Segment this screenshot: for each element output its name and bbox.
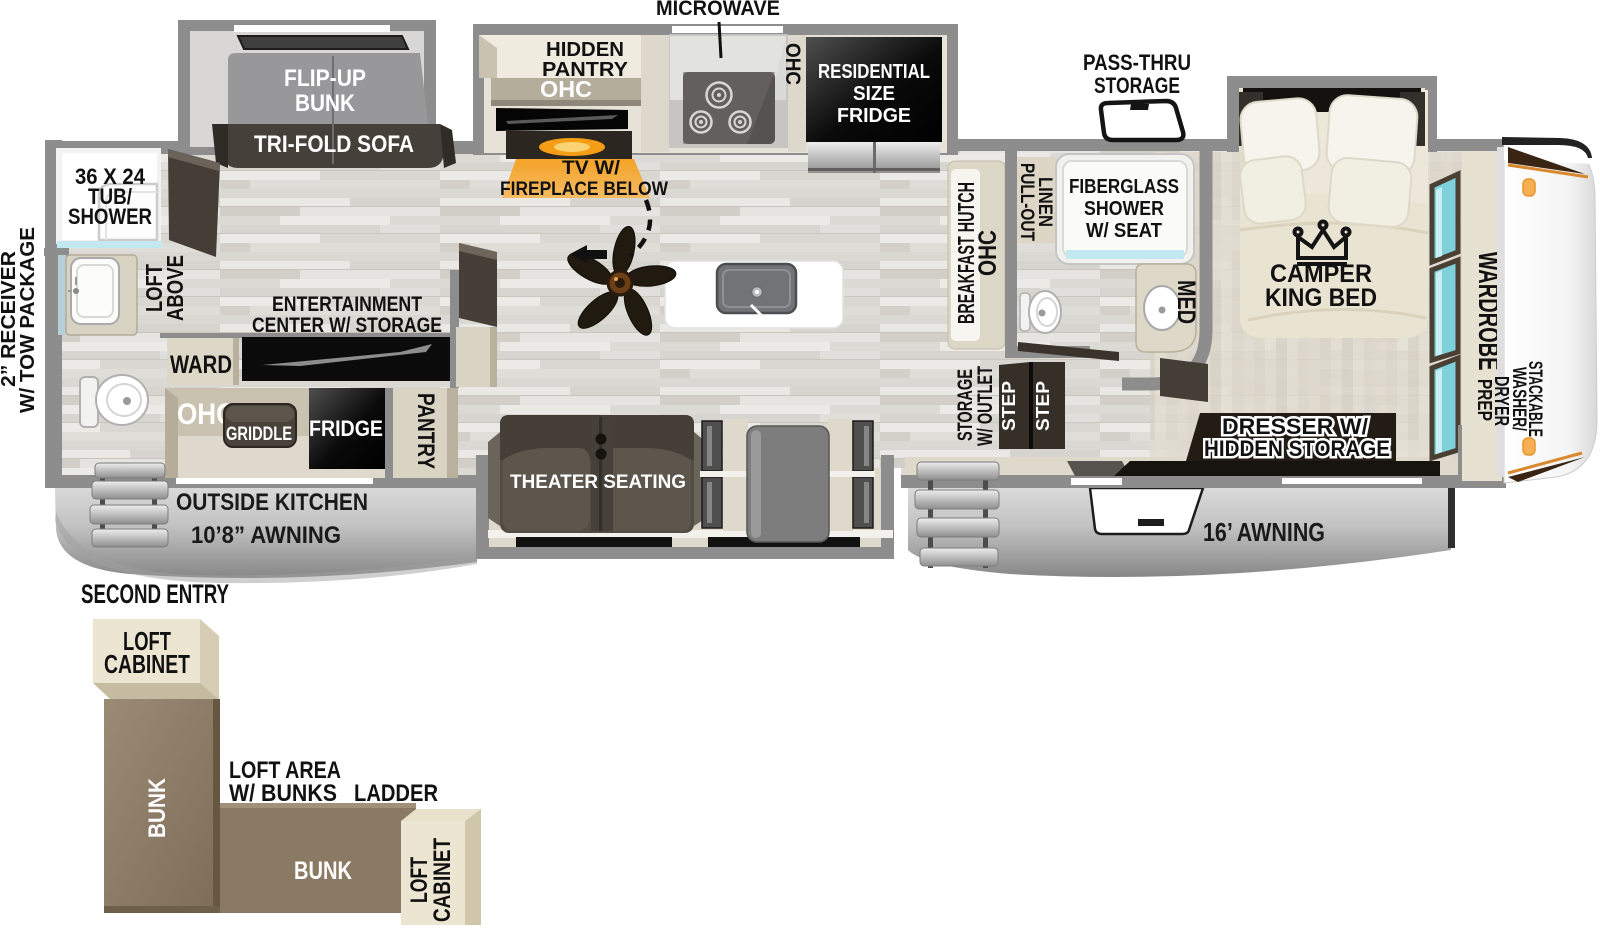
- svg-text:STEP: STEP: [1033, 381, 1053, 431]
- svg-text:STEP: STEP: [999, 381, 1019, 431]
- svg-text:FRIDGE: FRIDGE: [309, 416, 383, 441]
- svg-text:HIDDEN: HIDDEN: [546, 39, 624, 61]
- svg-text:ENTERTAINMENT: ENTERTAINMENT: [272, 293, 422, 316]
- svg-text:W/ TOW PACKAGE: W/ TOW PACKAGE: [17, 227, 39, 413]
- svg-text:WASHER/: WASHER/: [1508, 367, 1529, 432]
- svg-text:PASS-THRU: PASS-THRU: [1083, 50, 1191, 75]
- svg-text:W/ BUNKS: W/ BUNKS: [229, 780, 337, 807]
- svg-text:HIDDEN STORAGE: HIDDEN STORAGE: [1204, 436, 1390, 461]
- svg-text:OHC: OHC: [781, 43, 804, 85]
- svg-text:FRIDGE: FRIDGE: [837, 105, 911, 127]
- svg-text:GRIDDLE: GRIDDLE: [226, 424, 292, 445]
- svg-text:TRI-FOLD SOFA: TRI-FOLD SOFA: [254, 131, 414, 158]
- svg-text:TV W/: TV W/: [562, 158, 621, 179]
- svg-text:MED: MED: [1172, 280, 1200, 324]
- svg-text:PREP: PREP: [1473, 379, 1495, 421]
- svg-text:SECOND ENTRY: SECOND ENTRY: [81, 579, 229, 609]
- svg-text:MICROWAVE: MICROWAVE: [656, 0, 780, 20]
- svg-text:PANTRY: PANTRY: [412, 393, 439, 469]
- svg-text:OHC: OHC: [540, 76, 592, 102]
- svg-text:SIZE: SIZE: [853, 83, 895, 105]
- svg-text:BUNK: BUNK: [144, 777, 171, 838]
- svg-text:OUTSIDE KITCHEN: OUTSIDE KITCHEN: [176, 489, 368, 516]
- svg-text:KING BED: KING BED: [1265, 284, 1377, 312]
- svg-text:FIREPLACE BELOW: FIREPLACE BELOW: [500, 179, 668, 200]
- svg-text:LADDER: LADDER: [354, 780, 438, 807]
- svg-text:10’8” AWNING: 10’8” AWNING: [191, 522, 341, 549]
- svg-text:16’ AWNING: 16’ AWNING: [1203, 517, 1325, 547]
- svg-text:ABOVE: ABOVE: [162, 255, 188, 321]
- svg-text:CABINET: CABINET: [104, 649, 190, 679]
- svg-text:BUNK: BUNK: [295, 90, 356, 117]
- svg-text:W/ OUTLET: W/ OUTLET: [974, 366, 997, 446]
- svg-text:SHOWER: SHOWER: [68, 204, 152, 229]
- svg-text:LINEN: LINEN: [1034, 177, 1055, 227]
- svg-text:SHOWER: SHOWER: [1084, 198, 1164, 220]
- svg-text:PULL-OUT: PULL-OUT: [1016, 163, 1037, 241]
- svg-text:OHC: OHC: [974, 230, 1002, 276]
- svg-text:FLIP-UP: FLIP-UP: [284, 65, 366, 92]
- svg-text:W/ SEAT: W/ SEAT: [1086, 220, 1162, 242]
- svg-text:STORAGE: STORAGE: [1094, 73, 1180, 98]
- svg-text:BUNK: BUNK: [294, 857, 352, 885]
- svg-text:FIBERGLASS: FIBERGLASS: [1069, 176, 1179, 198]
- svg-text:WARD: WARD: [170, 351, 232, 379]
- svg-text:CABINET: CABINET: [429, 838, 456, 922]
- svg-text:RESIDENTIAL: RESIDENTIAL: [818, 61, 930, 83]
- svg-text:THEATER SEATING: THEATER SEATING: [510, 472, 686, 493]
